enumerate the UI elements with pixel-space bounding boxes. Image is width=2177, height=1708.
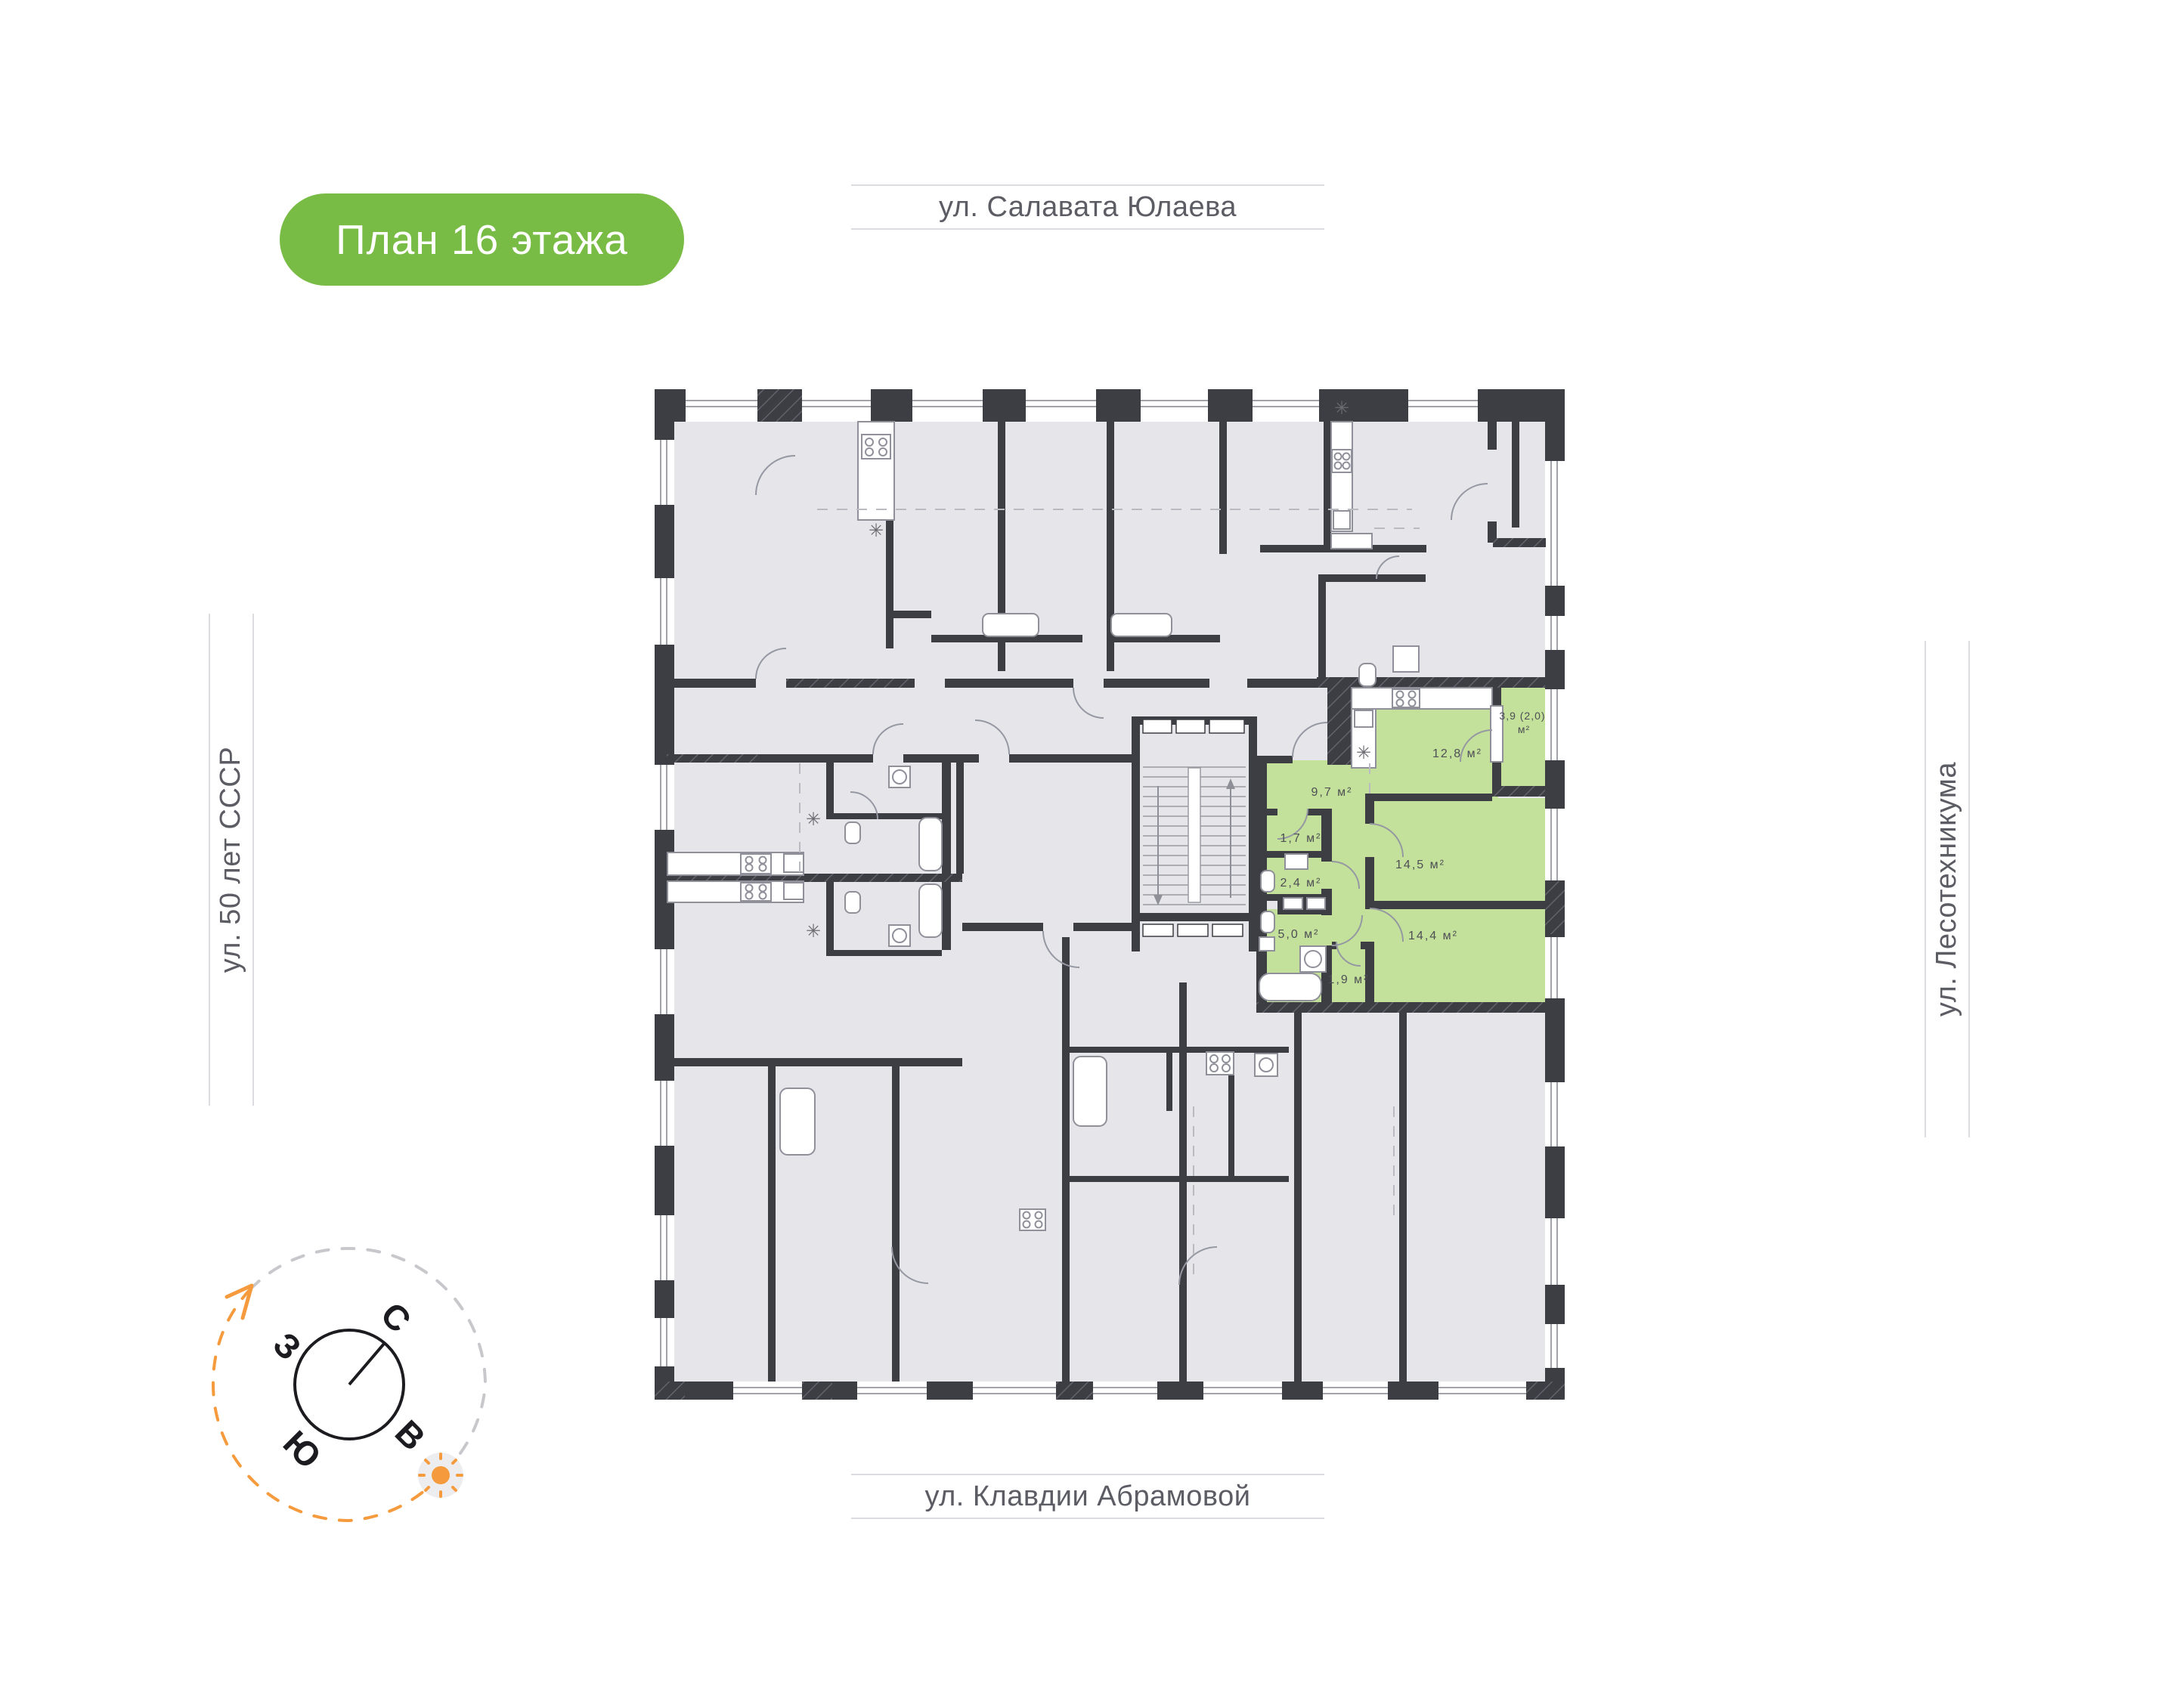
label-bathroom: 5,0 м² bbox=[1277, 928, 1319, 941]
label-balcony-1: 3,9 (2,0) bbox=[1499, 710, 1545, 722]
label-kitchen-living: 12,8 м² bbox=[1432, 747, 1482, 760]
label-hallway: 9,7 м² bbox=[1311, 786, 1352, 799]
floorplan: ✳ ✳ ✳ ✳ ✳ 12,8 м² 3,9 (2,0) м² 9,7 м² 1,… bbox=[0, 0, 2177, 1708]
svg-text:✳: ✳ bbox=[1334, 398, 1349, 419]
label-bedroom-2: 14,4 м² bbox=[1408, 930, 1458, 942]
label-bedroom-1: 14,5 м² bbox=[1395, 859, 1445, 871]
page: План 16 этажа ул. Салавата Юлаева ул. Кл… bbox=[0, 0, 2177, 1708]
svg-text:✳: ✳ bbox=[806, 809, 821, 830]
label-laundry: 1,9 м² bbox=[1327, 973, 1369, 986]
label-wc: 2,4 м² bbox=[1280, 877, 1321, 890]
svg-text:✳: ✳ bbox=[806, 921, 821, 942]
label-balcony-2: м² bbox=[1518, 723, 1530, 735]
label-storage: 1,7 м² bbox=[1280, 832, 1321, 845]
svg-text:✳: ✳ bbox=[1356, 743, 1371, 763]
svg-text:✳: ✳ bbox=[869, 521, 884, 541]
